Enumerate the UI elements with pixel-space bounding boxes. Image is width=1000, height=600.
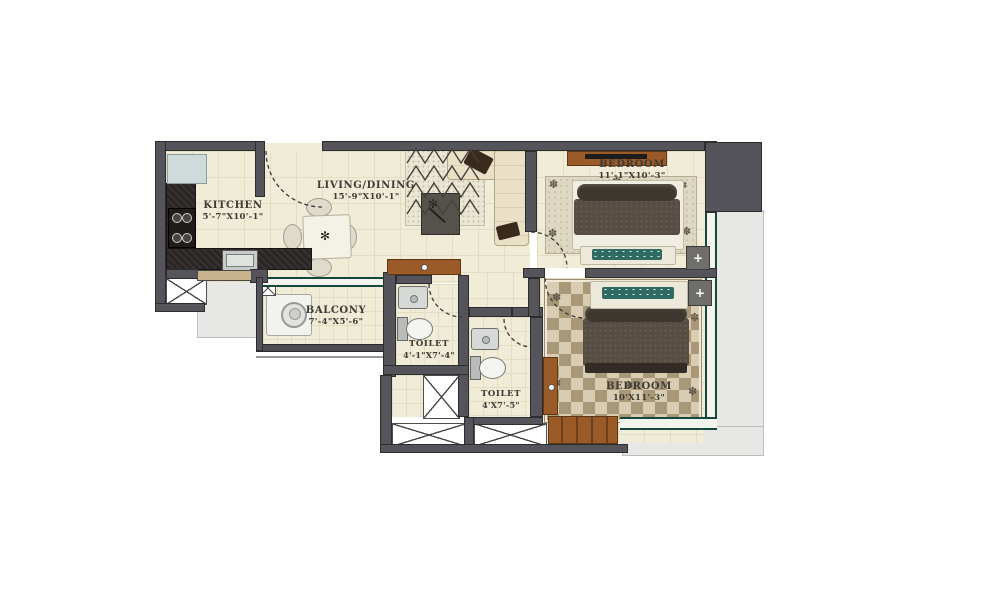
wall-entry-stub <box>255 141 265 197</box>
toilet1-wc-bowl <box>406 318 433 340</box>
bed2-duvet <box>583 318 689 366</box>
wall-shaft-bottom <box>155 303 205 312</box>
wall-left-lower <box>380 375 392 452</box>
toilet2-label: TOILET4'X7'-5" <box>481 389 521 410</box>
wall-toilets-mid <box>458 275 469 417</box>
bedrooms-right-window <box>705 213 717 417</box>
bedroom2-bottom-window <box>620 417 717 430</box>
dining-chair-left <box>283 224 302 250</box>
bedroom1-label: BEDROOM11'-1"X10'-3" <box>598 159 665 181</box>
console-knob <box>421 264 428 271</box>
stove <box>168 208 196 248</box>
wall-kitchen-bottom-left <box>166 269 199 279</box>
wall-bedroom-divider <box>523 268 545 278</box>
floor-toilet-lobby <box>392 375 423 417</box>
wall-toilet1-left <box>383 272 396 377</box>
bed2-footboard <box>585 363 687 373</box>
wall-top-left <box>155 141 265 151</box>
balcony-label: BALCONY7'-4"X5'-6" <box>306 305 366 327</box>
toilet2-washbasin <box>471 328 499 350</box>
balcony-railing <box>256 344 386 352</box>
balcony-sliding-window <box>263 277 385 287</box>
plant-icon: ✻ <box>320 230 330 242</box>
bedroom1-nightstand: + <box>686 246 710 270</box>
wall-bedroom2-left-upper <box>528 278 540 317</box>
wall-top-main <box>322 141 705 151</box>
bedroom2-wardrobe <box>548 416 618 444</box>
wall-left <box>155 141 166 311</box>
bed2-head-pillows <box>602 287 674 299</box>
floret-icon: ✽ <box>548 228 557 239</box>
kitchen-sink <box>222 250 258 271</box>
floret-icon: ✽ <box>549 179 558 190</box>
bedroom2-nightstand: + <box>688 280 712 306</box>
toilet1-label: TOILET4'-1"X7'-4" <box>403 339 455 360</box>
floor-entry-gap <box>265 143 322 153</box>
wall-balcony-left <box>256 277 263 351</box>
wall-toilet1-bottom <box>383 365 469 375</box>
toilet1-washbasin <box>398 286 428 309</box>
wall-bottom <box>380 444 628 453</box>
balcony-outer-line <box>256 356 386 358</box>
living-label: LIVING/DINING15'-9"X10'-1" <box>317 180 415 202</box>
floret-icon: ✽ <box>552 292 561 303</box>
floret-icon: ✽ <box>690 312 699 323</box>
wall-toilet2-top <box>469 307 512 317</box>
floorplan-canvas: ✻ ✻ + + ✽ ✽ ✽ ✽ ✽ ✽ ✽ ✽ ✽ ✽ <box>0 0 1000 600</box>
kitchen-service-window <box>197 270 252 281</box>
wall-toilet1-top <box>396 275 432 284</box>
toilet2-wc-bowl <box>479 357 506 379</box>
coffee-table <box>421 193 460 235</box>
wall-toilet2-bottom <box>469 417 543 425</box>
duct-toilet1 <box>423 375 460 419</box>
floret-icon: ✽ <box>688 386 697 397</box>
bed1-duvet <box>574 199 680 235</box>
fridge <box>167 154 207 184</box>
bed1-pillows <box>577 184 677 201</box>
deck-border <box>705 142 762 212</box>
wall-toilet2-right <box>530 317 543 417</box>
bed1-bench-pillows <box>592 249 662 260</box>
door-leaf-knob <box>548 384 555 391</box>
kitchen-label: KITCHEN5'-7"X10'-1" <box>203 200 264 222</box>
bedroom2-label: BEDROOM10'X11'-3" <box>606 381 672 403</box>
duct-below-kitchen <box>166 278 207 305</box>
ledge-right <box>716 210 764 430</box>
wall-living-bed1 <box>525 151 537 232</box>
